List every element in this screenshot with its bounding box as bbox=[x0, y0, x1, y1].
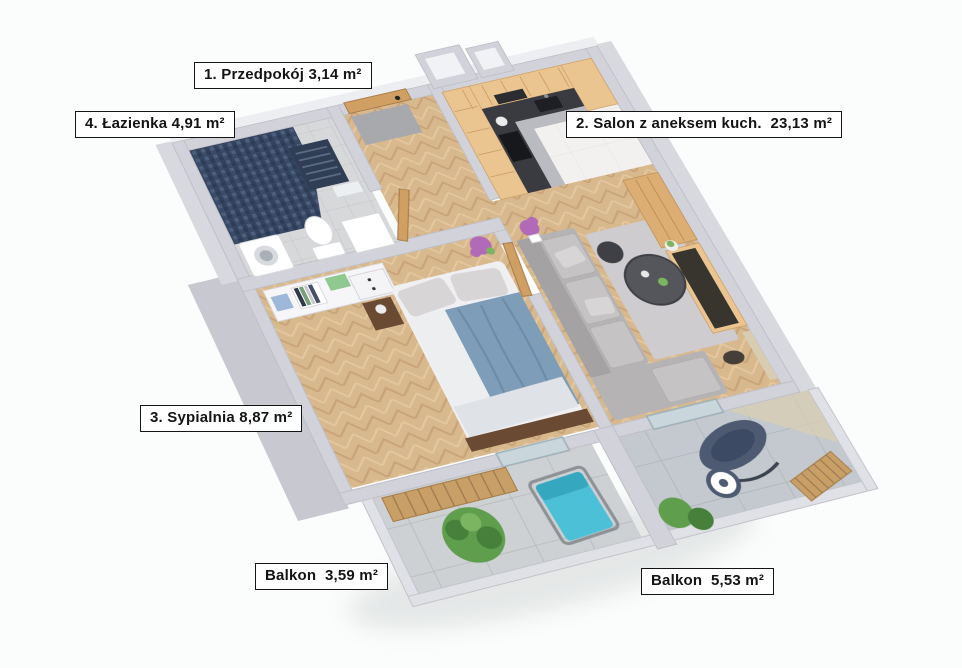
room-label-salon: 2. Salon z aneksem kuch. 23,13 m² bbox=[566, 111, 842, 138]
room-label-balkon-maly: Balkon 3,59 m² bbox=[255, 563, 388, 590]
room-label-balkon-duzy: Balkon 5,53 m² bbox=[641, 568, 774, 595]
room-label-lazienka: 4. Łazienka 4,91 m² bbox=[75, 111, 235, 138]
floor-plan-stage: 1. Przedpokój 3,14 m² 4. Łazienka 4,91 m… bbox=[0, 0, 962, 668]
bathroom-door-open bbox=[398, 189, 410, 241]
room-label-przedpokoj: 1. Przedpokój 3,14 m² bbox=[194, 62, 372, 89]
room-label-sypialnia: 3. Sypialnia 8,87 m² bbox=[140, 405, 302, 432]
